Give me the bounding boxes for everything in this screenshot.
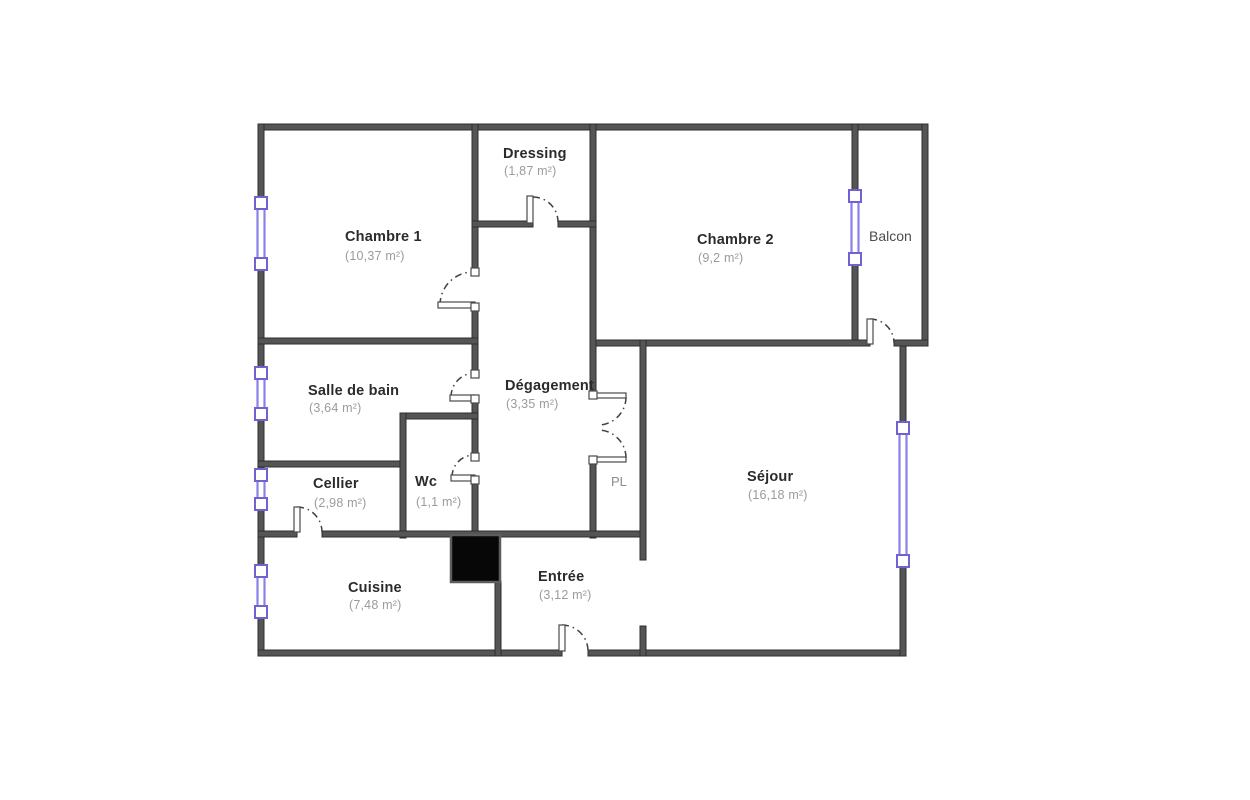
floor-plan: Chambre 1 (10,37 m²) Dressing (1,87 m²) … (0, 0, 1250, 800)
room-area-salle-de-bain: (3,64 m²) (309, 401, 362, 415)
wall-right-balcon-exterior (922, 124, 928, 346)
wall-wc-top (400, 413, 478, 419)
wall-cuisine-entree (495, 581, 501, 656)
room-label-chambre1: Chambre 1 (345, 229, 422, 245)
window-chambre2-balcon (849, 190, 861, 265)
window-cellier (255, 469, 267, 510)
room-label-sejour: Séjour (747, 469, 793, 485)
wall-corridor-east-2 (590, 460, 596, 538)
room-label-salle-de-bain: Salle de bain (308, 383, 399, 399)
wall-chambre1-bottom (258, 338, 478, 344)
room-area-cuisine: (7,48 m²) (349, 598, 402, 612)
wall-sejour-west (640, 340, 646, 560)
room-area-chambre1: (10,37 m²) (345, 249, 405, 263)
wall-corridor-west-1 (472, 124, 478, 272)
room-area-sejour: (16,18 m²) (748, 488, 808, 502)
room-area-cellier: (2,98 m²) (314, 496, 367, 510)
room-area-entree: (3,12 m²) (539, 588, 592, 602)
door-cellier (294, 507, 322, 532)
room-area-chambre2: (9,2 m²) (698, 251, 743, 265)
wall-cellier-bottom-left (258, 531, 297, 537)
door-jamb (589, 456, 597, 464)
door-jamb (471, 395, 479, 403)
door-jamb (471, 268, 479, 276)
wall-corridor-west-3 (472, 399, 478, 457)
door-jamb (471, 453, 479, 461)
wall-sdb-cellier (258, 461, 406, 467)
room-area-degagement: (3,35 m²) (506, 397, 559, 411)
room-area-wc: (1,1 m²) (416, 495, 461, 509)
door-placard-double (596, 393, 626, 462)
door-entrance (559, 625, 588, 651)
window-sejour (897, 422, 909, 567)
window-salle-de-bain (255, 367, 267, 420)
room-label-balcon: Balcon (869, 228, 912, 244)
wall-bottom-exterior-left (258, 650, 562, 656)
chimney-block (451, 535, 500, 582)
room-label-chambre2: Chambre 2 (697, 232, 774, 248)
door-jamb (471, 476, 479, 484)
window-chambre1 (255, 197, 267, 270)
floor-plan-drawing (0, 0, 1250, 800)
wall-corridor-west-4 (472, 480, 478, 538)
wall-dressing-bottom-right (558, 221, 596, 227)
door-dressing (527, 196, 558, 223)
wall-sejour-west-stub (640, 626, 646, 656)
room-label-cellier: Cellier (313, 476, 359, 492)
door-balcon (867, 319, 894, 344)
wall-balcon-bottom-right (894, 340, 928, 346)
room-label-placard: PL (611, 474, 627, 489)
wall-corridor-east-1 (590, 124, 596, 395)
room-area-dressing: (1,87 m²) (504, 164, 557, 178)
room-label-entree: Entrée (538, 569, 584, 585)
door-jamb (471, 303, 479, 311)
wall-wc-left (400, 413, 406, 538)
window-cuisine (255, 565, 267, 618)
wall-chambre2-bottom (590, 340, 870, 346)
door-chambre1 (438, 272, 475, 308)
wall-bottom-exterior-right (588, 650, 906, 656)
room-label-cuisine: Cuisine (348, 580, 402, 596)
room-label-dressing: Dressing (503, 146, 567, 162)
room-label-wc: Wc (415, 474, 437, 490)
wall-dressing-bottom-left (472, 221, 533, 227)
room-label-degagement: Dégagement (505, 378, 594, 394)
door-jamb (471, 370, 479, 378)
